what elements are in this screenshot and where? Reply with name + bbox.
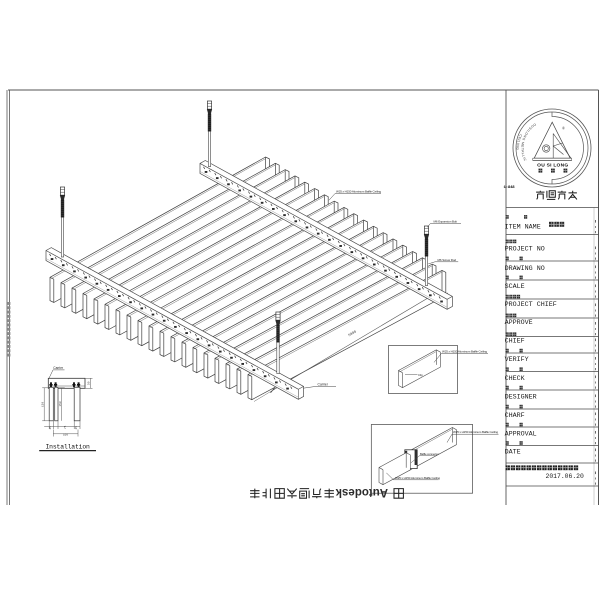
svg-text:VERIFY: VERIFY	[505, 356, 529, 364]
svg-text:2017.06.20: 2017.06.20	[546, 473, 585, 480]
svg-text:APPROVE: APPROVE	[505, 319, 533, 327]
svg-text:1:848: 1:848	[504, 186, 516, 190]
svg-text:DESIGNER: DESIGNER	[505, 394, 537, 402]
svg-text:100: 100	[63, 434, 68, 437]
svg-text:OU SI LONG: OU SI LONG	[537, 163, 568, 169]
svg-text:DATE: DATE	[505, 448, 521, 456]
svg-text:25: 25	[75, 426, 78, 430]
svg-text:CHIEF: CHIEF	[505, 337, 525, 345]
svg-text:Carrier: Carrier	[53, 366, 64, 370]
svg-text:DRAWING NO: DRAWING NO	[505, 265, 545, 273]
svg-text:Autodesk: Autodesk	[335, 486, 388, 498]
svg-text:CHARF: CHARF	[505, 412, 525, 420]
svg-text:W25 x H150 Aluminum Baffle Cei: W25 x H150 Aluminum Baffle Ceiling	[442, 349, 487, 353]
svg-text:W25 x H150 Aluminum Baffle Cei: W25 x H150 Aluminum Baffle Ceiling	[453, 430, 498, 434]
svg-text:APPROVAL: APPROVAL	[505, 430, 537, 438]
svg-text:CHECK: CHECK	[505, 375, 525, 383]
svg-text:M6 Screw Rod: M6 Screw Rod	[438, 258, 457, 262]
svg-text:W25 x H150 Aluminum Baffle Cei: W25 x H150 Aluminum Baffle Ceiling	[395, 476, 440, 480]
svg-text:ITEM NAME: ITEM NAME	[505, 224, 541, 232]
svg-text:PROJECT NO: PROJECT NO	[505, 246, 545, 254]
svg-text:Carrier: Carrier	[318, 382, 329, 386]
svg-text:®: ®	[562, 126, 565, 131]
svg-text:M6 Expansion Bolt: M6 Expansion Bolt	[434, 220, 458, 224]
svg-text:PROJECT CHIEF: PROJECT CHIEF	[505, 301, 557, 309]
svg-text:W25 x H150 Aluminum Baffle Cei: W25 x H150 Aluminum Baffle Ceiling	[336, 190, 381, 194]
svg-text:Baffle connector: Baffle connector	[420, 452, 439, 456]
svg-text:SCALE: SCALE	[505, 283, 525, 291]
svg-text:50: 50	[88, 381, 91, 385]
svg-text:150: 150	[41, 402, 44, 407]
svg-text:75: 75	[64, 425, 67, 429]
svg-text:Clip: Clip	[418, 373, 423, 377]
svg-text:25: 25	[49, 426, 52, 430]
svg-text:150: 150	[59, 401, 62, 406]
svg-text:Installation: Installation	[46, 443, 91, 450]
